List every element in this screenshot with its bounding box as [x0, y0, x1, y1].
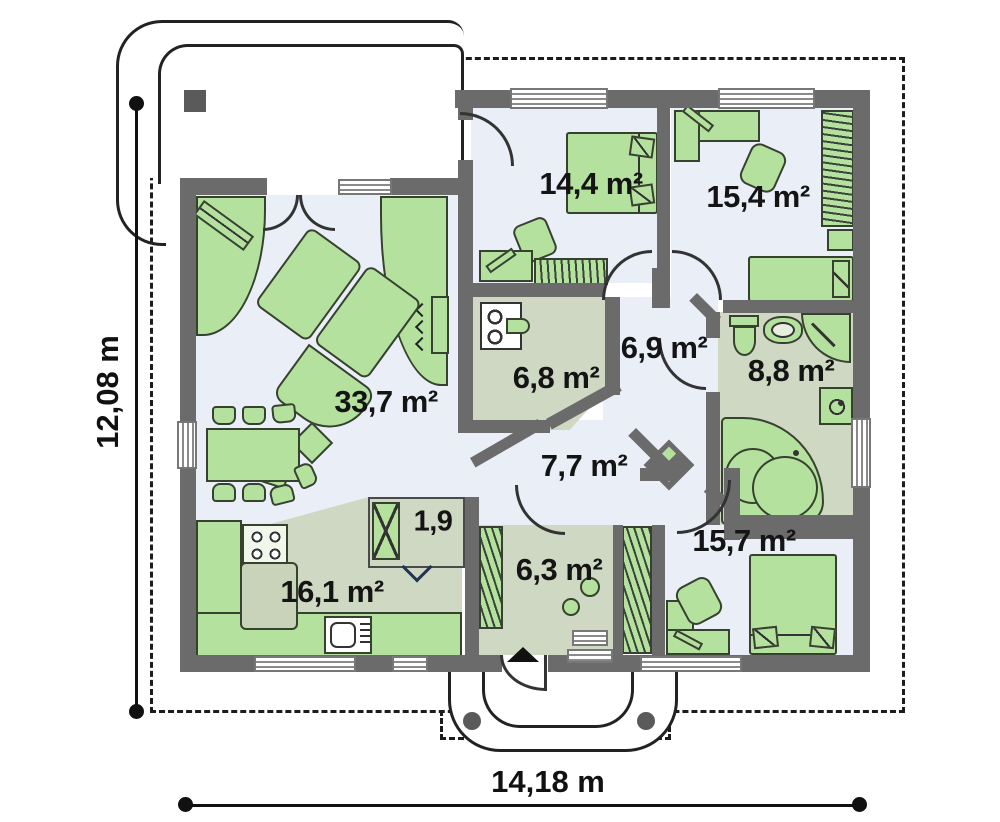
floor-plan: 12,08 m 14,18 m [0, 0, 1000, 822]
stool [562, 598, 580, 616]
wall [723, 300, 855, 313]
wall [465, 497, 479, 655]
pillow [832, 260, 850, 298]
wall [657, 108, 670, 270]
doormat [572, 630, 608, 646]
sink-bowl [330, 622, 356, 648]
window [851, 418, 871, 488]
pillow [752, 626, 779, 649]
wall [652, 525, 665, 655]
window [177, 421, 197, 469]
toilet-bowl [733, 326, 756, 356]
basin-bowl [771, 322, 795, 338]
dimension-dot [129, 704, 144, 719]
bookshelf [534, 258, 608, 285]
terrace-inner-outline [158, 44, 464, 184]
entry-porch-step [482, 666, 634, 728]
dimension-dot [129, 96, 144, 111]
sink-drainer [360, 623, 370, 645]
entry-door-leaf [544, 655, 547, 691]
porch-pillar [637, 712, 655, 730]
nightstand [827, 229, 854, 251]
pillow [809, 626, 836, 649]
dining-chair [212, 406, 236, 425]
height-dimension-label: 12,08 m [90, 335, 126, 449]
window-sill [567, 649, 613, 663]
window [338, 179, 392, 195]
wall [606, 90, 720, 108]
room-label-entry: 6,3 m² [516, 552, 603, 588]
window [254, 656, 356, 672]
room-label-pantry: 1,9 [414, 506, 453, 539]
wall [180, 178, 267, 195]
wall [652, 268, 670, 308]
washing-machine [819, 387, 853, 425]
wall [180, 467, 196, 672]
boiler-unit [506, 318, 530, 334]
wardrobe [622, 526, 652, 654]
wall [455, 90, 513, 108]
wardrobe [821, 110, 854, 227]
dining-chair [242, 406, 266, 425]
wall [853, 90, 870, 418]
cooktop [242, 524, 288, 564]
bathtub-basin [752, 456, 818, 520]
room-label-living: 33,7 m² [334, 384, 437, 420]
room-label-bedroom2: 15,4 m² [706, 179, 809, 215]
dimension-line-vertical [135, 100, 138, 713]
wardrobe [479, 526, 503, 629]
dimension-line-horizontal [185, 804, 860, 807]
room-label-hall: 7,7 m² [541, 448, 628, 484]
dining-chair [242, 483, 266, 502]
chimney-shaft [372, 502, 400, 560]
fireplace [431, 296, 449, 354]
wall [458, 283, 604, 297]
wall [613, 525, 623, 655]
window [510, 88, 608, 109]
window [392, 656, 428, 672]
dining-chair [212, 483, 236, 502]
entry-arrow-icon [507, 647, 539, 662]
window [718, 88, 815, 109]
dimension-dot [178, 797, 193, 812]
wall [180, 178, 196, 423]
washbasin [763, 316, 803, 344]
terrace-pillar [184, 90, 206, 112]
dimension-dot [852, 797, 867, 812]
dining-table [206, 428, 300, 482]
room-label-bedroom3: 15,7 m² [692, 523, 795, 559]
room-label-bathroom: 8,8 m² [748, 353, 835, 389]
porch-pillar [463, 712, 481, 730]
room-label-utility: 6,8 m² [513, 360, 600, 396]
plot-boundary-notch-left [440, 710, 443, 740]
room-label-bedroom1: 14,4 m² [539, 166, 642, 202]
room-label-kitchen: 16,1 m² [280, 574, 383, 610]
kitchen-sink [324, 616, 372, 654]
window [640, 656, 742, 672]
wall [605, 297, 620, 395]
wall [853, 486, 870, 672]
pillow [629, 135, 656, 158]
wall [640, 468, 678, 481]
bathtub-drain [793, 450, 799, 456]
room-label-corridor: 6,9 m² [621, 330, 708, 366]
width-dimension-label: 14,18 m [491, 764, 605, 800]
